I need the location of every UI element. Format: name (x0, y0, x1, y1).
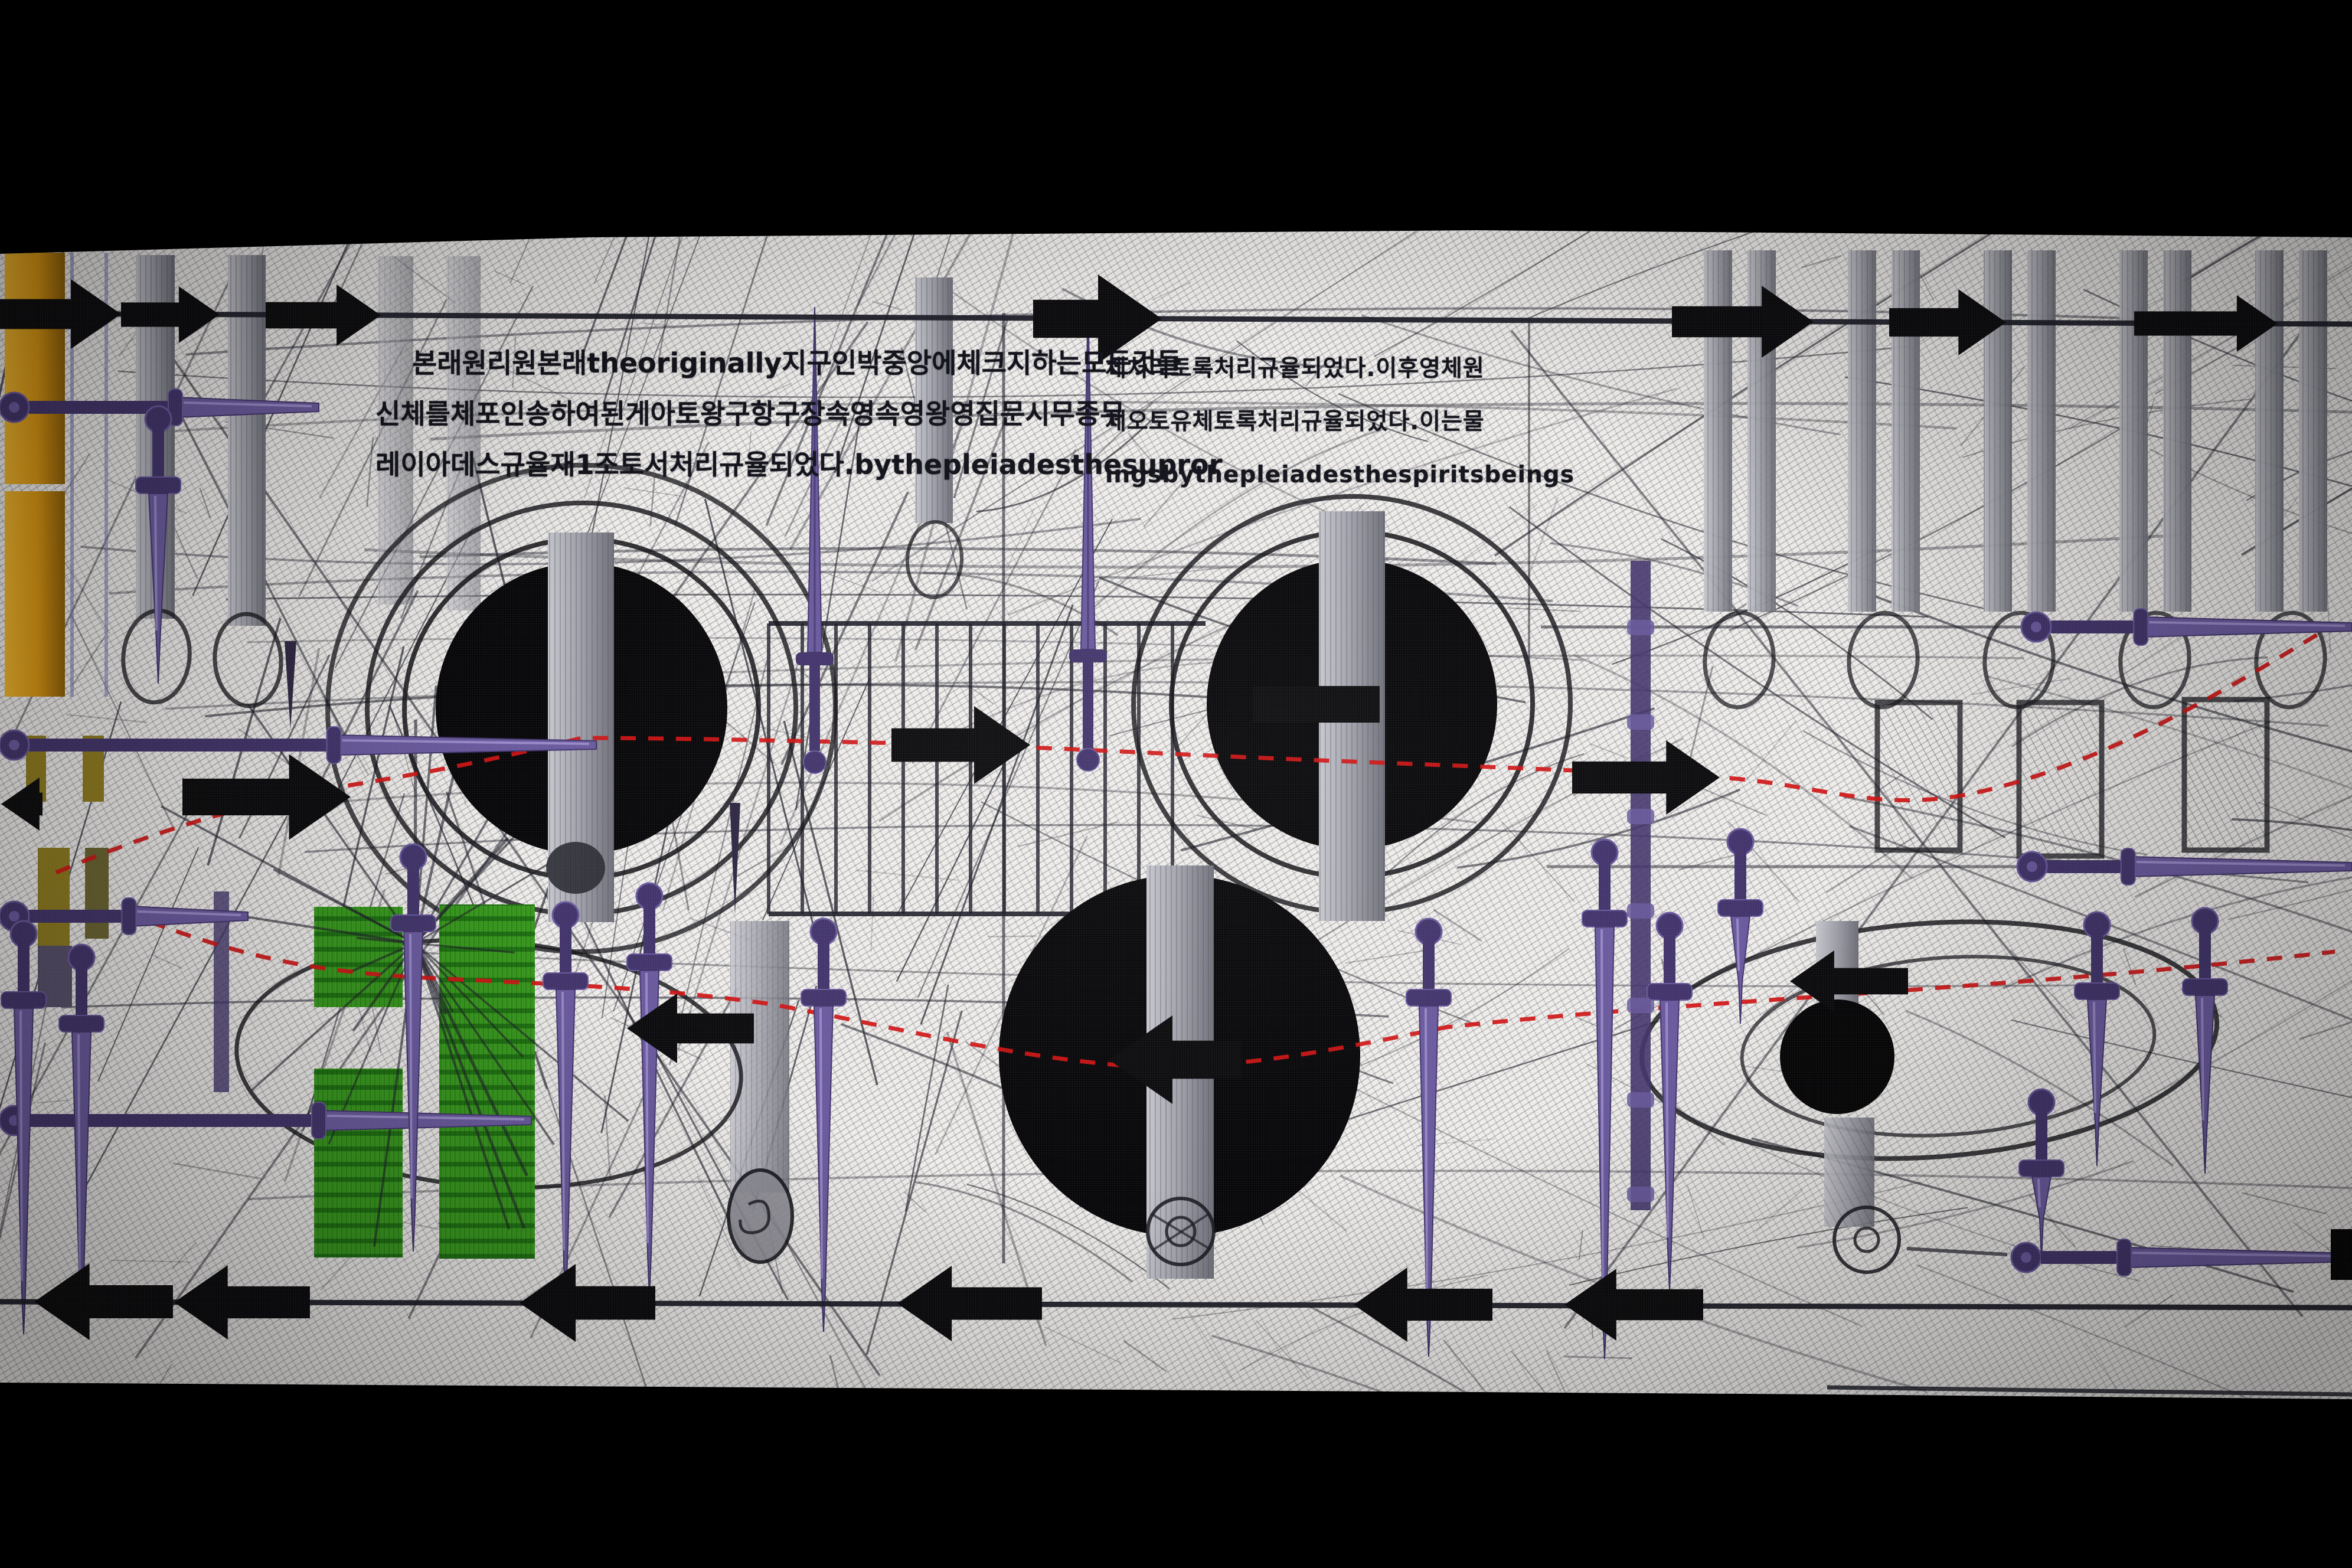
text-line: 체오토유체토록처리규율되었다.이는물 (1105, 396, 1574, 449)
text-block-left: 본래원리원본래theoriginally지구인박중앙에체크지하는모든것들 신체를… (375, 338, 1222, 490)
text-line: 신체를체포인송하여된게아토왕구항구장속영속영왕영집문시무종무 (375, 388, 1222, 439)
text-block-right: 체처리토록처리규율되었다.이후영체원 체오토유체토록처리규율되었다.이는물 in… (1105, 342, 1574, 502)
artwork-canvas (0, 0, 2352, 1568)
text-line: 본래원리원본래theoriginally지구인박중앙에체크지하는모든것들 (375, 338, 1222, 388)
text-line: 체처리토록처리규율되었다.이후영체원 (1105, 342, 1574, 396)
text-line: ingsbythepleiadesthespiritsbeings (1105, 449, 1574, 502)
photographed-screen-artwork: 본래원리원본래theoriginally지구인박중앙에체크지하는모든것들 신체를… (0, 0, 2352, 1568)
text-line: 레이아데스규율재1조토서처리규율되었다.bythepleiadesthesupr… (375, 439, 1222, 490)
